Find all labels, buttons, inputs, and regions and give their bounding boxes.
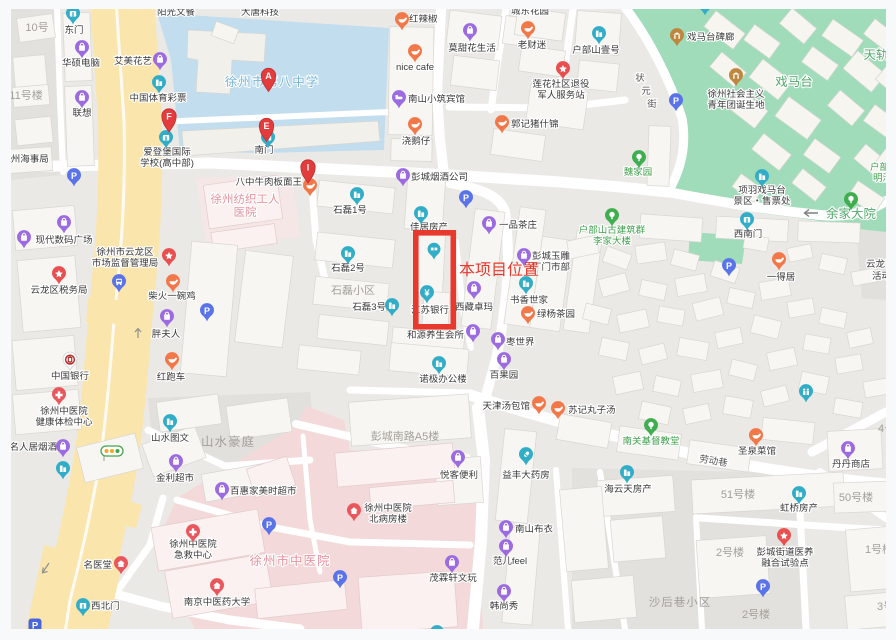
svg-text:名医堂: 名医堂 (83, 557, 112, 571)
svg-text:学校(高中部): 学校(高中部) (140, 155, 194, 169)
svg-text:绿杨茶园: 绿杨茶园 (537, 306, 575, 320)
svg-text:戏马台: 戏马台 (775, 71, 813, 90)
svg-text:户部山壹号: 户部山壹号 (572, 42, 620, 56)
svg-text:彭城南路A5楼: 彭城南路A5楼 (371, 428, 439, 444)
svg-text:金利超市: 金利超市 (156, 470, 195, 484)
svg-text:丹丹商店: 丹丹商店 (832, 456, 870, 470)
svg-text:现代数码广场: 现代数码广场 (35, 232, 92, 246)
svg-text:融合试验点: 融合试验点 (761, 555, 809, 569)
svg-text:海云天房产: 海云天房产 (604, 481, 652, 495)
svg-text:A: A (265, 69, 272, 82)
svg-text:枣世界: 枣世界 (506, 334, 535, 348)
svg-text:中国体育彩票: 中国体育彩票 (129, 90, 187, 104)
svg-text:红辣椒: 红辣椒 (409, 11, 438, 25)
svg-text:艾美花艺: 艾美花艺 (114, 53, 152, 67)
svg-text:书香世家: 书香世家 (510, 292, 549, 306)
svg-text:市场监督管理局: 市场监督管理局 (92, 255, 159, 269)
svg-text:诺极办公楼: 诺极办公楼 (419, 371, 467, 385)
svg-text:东门: 东门 (64, 22, 83, 36)
svg-text:郭记猪什锦: 郭记猪什锦 (511, 116, 559, 130)
svg-text:I: I (307, 160, 310, 173)
svg-text:百惠家美时超市: 百惠家美时超市 (230, 483, 297, 497)
svg-text:健康体检中心: 健康体检中心 (35, 414, 93, 428)
svg-text:西藏卓玛: 西藏卓玛 (455, 299, 493, 313)
svg-text:青年团诞生地: 青年团诞生地 (707, 97, 765, 111)
svg-text:西北门: 西北门 (91, 598, 120, 612)
svg-text:2号楼: 2号楼 (716, 544, 744, 560)
svg-text:悦客便利: 悦客便利 (440, 467, 478, 481)
svg-text:彭城烟酒公司: 彭城烟酒公司 (411, 169, 468, 183)
svg-text:街: 街 (647, 96, 657, 110)
svg-text:51号楼: 51号楼 (721, 486, 755, 502)
svg-text:老财迷: 老财迷 (518, 37, 547, 51)
svg-text:石磊小区: 石磊小区 (331, 282, 375, 298)
svg-text:浇鹅仔: 浇鹅仔 (402, 133, 431, 147)
svg-text:石磊3号: 石磊3号 (352, 299, 386, 313)
svg-text:50号楼: 50号楼 (839, 489, 873, 505)
svg-text:石磊1号: 石磊1号 (333, 202, 367, 216)
svg-text:徐州市中医院: 徐州市中医院 (249, 550, 330, 569)
svg-text:益丰大药房: 益丰大药房 (502, 467, 550, 481)
svg-text:11号楼: 11号楼 (9, 87, 42, 103)
svg-text:天津汤包馆: 天津汤包馆 (482, 398, 530, 412)
svg-text:2号楼: 2号楼 (742, 606, 770, 622)
svg-text:山水豪庭: 山水豪庭 (201, 431, 255, 450)
svg-text:一得居: 一得居 (767, 269, 796, 283)
svg-text:F: F (166, 109, 172, 122)
svg-text:天轨: 天轨 (863, 44, 889, 63)
svg-text:李家大楼: 李家大楼 (593, 233, 632, 247)
svg-text:10号: 10号 (25, 19, 48, 35)
svg-text:一品茶庄: 一品茶庄 (499, 217, 538, 231)
svg-text:北病房楼: 北病房楼 (369, 511, 408, 525)
svg-text:军人服务站: 军人服务站 (537, 87, 585, 101)
svg-text:圣泉菜馆: 圣泉菜馆 (738, 443, 776, 457)
svg-text:红跑车: 红跑车 (157, 369, 186, 383)
svg-text:名人居烟酒: 名人居烟酒 (9, 439, 57, 453)
svg-text:急救中心: 急救中心 (174, 547, 213, 561)
svg-text:莫甜花生活: 莫甜花生活 (448, 40, 496, 54)
svg-text:状: 状 (635, 70, 645, 84)
svg-text:沙后巷小区: 沙后巷小区 (649, 594, 712, 610)
svg-text:茂霖轩文玩: 茂霖轩文玩 (429, 570, 477, 584)
svg-text:医院: 医院 (234, 204, 257, 220)
svg-text:苏记丸子汤: 苏记丸子汤 (568, 402, 616, 416)
svg-text:山水图文: 山水图文 (151, 430, 190, 444)
svg-text:南山布衣: 南山布衣 (515, 521, 554, 535)
svg-text:华硕电脑: 华硕电脑 (62, 55, 100, 69)
svg-text:范儿feel: 范儿feel (493, 553, 527, 567)
svg-text:八中牛肉板面王: 八中牛肉板面王 (235, 174, 302, 188)
svg-text:景区·售票处: 景区·售票处 (733, 193, 791, 207)
svg-text:胖夫人: 胖夫人 (152, 326, 181, 340)
svg-text:戏马台碑廊: 戏马台碑廊 (687, 29, 735, 43)
svg-text:E: E (263, 119, 269, 132)
svg-text:本项目位置: 本项目位置 (459, 256, 539, 280)
svg-text:元: 元 (641, 83, 651, 97)
svg-text:南山小筑宾馆: 南山小筑宾馆 (408, 91, 465, 105)
